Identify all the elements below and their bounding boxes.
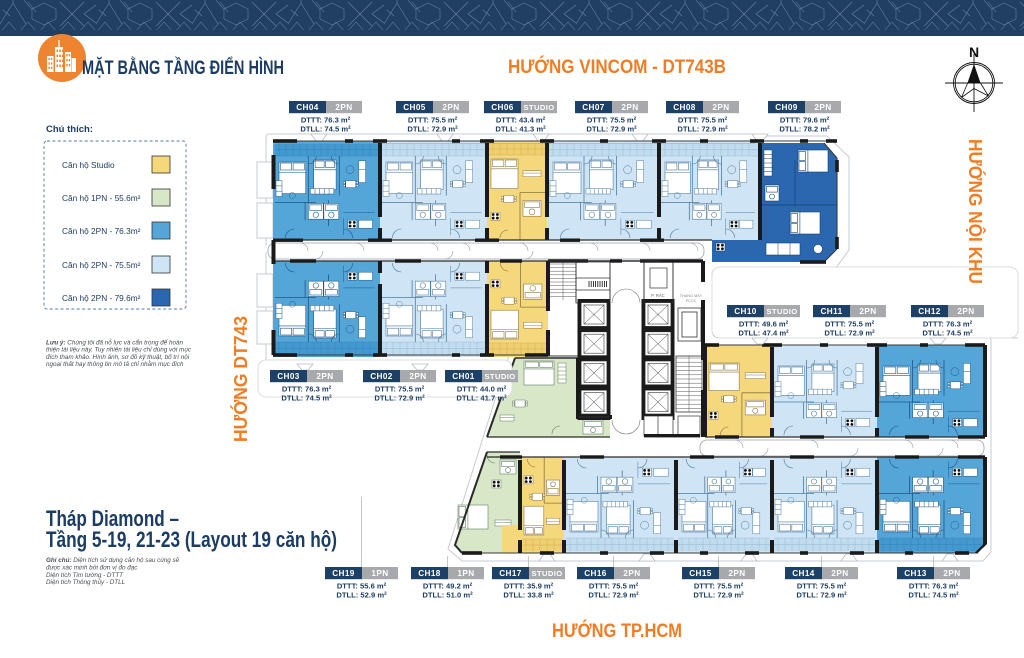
svg-text:DTLL: 72.9 m²: DTLL: 72.9 m² xyxy=(407,125,458,134)
svg-text:DTLL: 41.7 m²: DTLL: 41.7 m² xyxy=(456,394,507,403)
svg-text:DTLL: 33.8 m²: DTLL: 33.8 m² xyxy=(503,591,554,600)
svg-text:STUDIO: STUDIO xyxy=(766,307,797,316)
svg-text:CH06: CH06 xyxy=(491,103,514,112)
svg-text:HƯỚNG DT743: HƯỚNG DT743 xyxy=(230,316,251,442)
svg-text:DTTT: 75.5 m²: DTTT: 75.5 m² xyxy=(825,320,875,329)
svg-text:DTTT: 75.5 m²: DTTT: 75.5 m² xyxy=(375,385,425,394)
svg-text:2PN: 2PN xyxy=(409,372,426,381)
svg-text:DTLL: 47.4 m²: DTLL: 47.4 m² xyxy=(738,329,789,338)
svg-text:HƯỚNG TP.HCM: HƯỚNG TP.HCM xyxy=(552,618,682,642)
svg-text:DTTT: 49.2 m²: DTTT: 49.2 m² xyxy=(423,582,473,591)
svg-text:DTTT: 75.5 m²: DTTT: 75.5 m² xyxy=(589,582,639,591)
svg-text:DTTT: 75.5 m²: DTTT: 75.5 m² xyxy=(587,116,637,125)
svg-text:MẶT BẰNG TẦNG ĐIỂN HÌNH: MẶT BẰNG TẦNG ĐIỂN HÌNH xyxy=(82,55,284,79)
svg-text:PCCC: PCCC xyxy=(686,299,697,303)
svg-text:DTTT: 76.3 m²: DTTT: 76.3 m² xyxy=(282,385,332,394)
svg-text:HƯỚNG VINCOM - DT743B: HƯỚNG VINCOM - DT743B xyxy=(508,54,726,78)
svg-text:CH19: CH19 xyxy=(332,569,355,578)
svg-text:2PN: 2PN xyxy=(943,569,960,578)
svg-text:DTLL: 52.9 m²: DTLL: 52.9 m² xyxy=(336,591,387,600)
svg-text:STUDIO: STUDIO xyxy=(523,103,554,112)
svg-text:DTTT: 43.4 m²: DTTT: 43.4 m² xyxy=(496,116,546,125)
svg-text:THANG MÁY: THANG MÁY xyxy=(680,294,703,298)
svg-text:được xác minh bởi đơn vị đo đạ: được xác minh bởi đơn vị đo đạc xyxy=(46,563,138,571)
svg-text:DTTT: 76.3 m²: DTTT: 76.3 m² xyxy=(923,320,973,329)
svg-text:CH09: CH09 xyxy=(775,103,798,112)
svg-text:1PN: 1PN xyxy=(371,569,388,578)
svg-text:DTLL: 74.5 m²: DTLL: 74.5 m² xyxy=(281,394,332,403)
svg-text:CH14: CH14 xyxy=(792,569,815,578)
svg-text:CH03: CH03 xyxy=(277,372,300,381)
svg-text:CH17: CH17 xyxy=(499,569,522,578)
svg-text:Lưu ý: Chúng tôi đã nỗ lực và: Lưu ý: Chúng tôi đã nỗ lực và cẩn trọng … xyxy=(46,338,183,347)
svg-text:2PN: 2PN xyxy=(814,103,831,112)
svg-text:P. RÁC: P. RÁC xyxy=(651,293,664,298)
svg-text:DTTT: 75.5 m²: DTTT: 75.5 m² xyxy=(694,582,744,591)
svg-text:đích tham khảo. Hình ảnh, sơ đ: đích tham khảo. Hình ảnh, sơ đồ kỹ thuật… xyxy=(46,352,190,361)
svg-text:2PN: 2PN xyxy=(831,569,848,578)
svg-text:DTLL: 72.9 m²: DTLL: 72.9 m² xyxy=(588,591,639,600)
svg-text:2PN: 2PN xyxy=(335,103,352,112)
svg-text:DTTT: 75.5 m²: DTTT: 75.5 m² xyxy=(678,116,728,125)
svg-text:DTLL: 72.9 m²: DTLL: 72.9 m² xyxy=(586,125,637,134)
svg-text:Căn hộ 2PN - 75.5m²: Căn hộ 2PN - 75.5m² xyxy=(62,260,141,270)
svg-text:Căn hộ 2PN - 79.6m²: Căn hộ 2PN - 79.6m² xyxy=(62,293,141,303)
svg-text:DTTT: 55.6 m²: DTTT: 55.6 m² xyxy=(337,582,387,591)
svg-text:ngoại thất hay thông tin mô tả: ngoại thất hay thông tin mô tả chỉ nhằm … xyxy=(46,359,184,368)
svg-text:DTTT: 79.6 m²: DTTT: 79.6 m² xyxy=(780,116,830,125)
svg-text:2PN: 2PN xyxy=(859,307,876,316)
svg-text:DTLL: 72.9 m²: DTLL: 72.9 m² xyxy=(824,329,875,338)
svg-text:DTLL: 72.9 m²: DTLL: 72.9 m² xyxy=(796,591,847,600)
svg-text:2PN: 2PN xyxy=(623,569,640,578)
svg-text:DTLL: 41.3 m²: DTLL: 41.3 m² xyxy=(495,125,546,134)
svg-text:Căn hộ 1PN - 55.6m²: Căn hộ 1PN - 55.6m² xyxy=(62,193,141,203)
svg-text:DTTT: 76.3 m²: DTTT: 76.3 m² xyxy=(301,116,351,125)
svg-text:DTTT: 35.9 m²: DTTT: 35.9 m² xyxy=(504,582,554,591)
svg-text:CH02: CH02 xyxy=(370,372,393,381)
svg-text:DTTT: 44.0 m²: DTTT: 44.0 m² xyxy=(457,385,507,394)
svg-text:CH07: CH07 xyxy=(582,103,605,112)
svg-text:CH10: CH10 xyxy=(734,307,757,316)
svg-text:CH05: CH05 xyxy=(403,103,426,112)
svg-text:Ghi chú: Diện tích sử dụng căn: Ghi chú: Diện tích sử dụng căn hộ sau cù… xyxy=(46,556,180,564)
svg-text:DTLL: 72.9 m²: DTLL: 72.9 m² xyxy=(374,394,425,403)
svg-text:thiện tài liệu này. Tuy nhiên: thiện tài liệu này. Tuy nhiên tài liệu c… xyxy=(46,346,192,354)
svg-text:DTTT: 49.6 m²: DTTT: 49.6 m² xyxy=(739,320,789,329)
svg-text:Chú thích:: Chú thích: xyxy=(46,124,93,135)
svg-text:CH18: CH18 xyxy=(418,569,441,578)
svg-text:DTLL: 72.9 m²: DTLL: 72.9 m² xyxy=(677,125,728,134)
svg-text:DTTT: 75.5 m²: DTTT: 75.5 m² xyxy=(797,582,847,591)
svg-text:Diện tích Tim tường - DTTT: Diện tích Tim tường - DTTT xyxy=(46,572,124,579)
svg-text:DTTT: 76.3 m²: DTTT: 76.3 m² xyxy=(909,582,959,591)
svg-text:DTLL: 74.5 m²: DTLL: 74.5 m² xyxy=(300,125,351,134)
svg-text:DTTT: 75.5 m²: DTTT: 75.5 m² xyxy=(408,116,458,125)
svg-text:CH16: CH16 xyxy=(584,569,607,578)
svg-text:HƯỚNG NỘI KHU: HƯỚNG NỘI KHU xyxy=(965,139,986,284)
svg-text:2PN: 2PN xyxy=(316,372,333,381)
svg-text:2PN: 2PN xyxy=(728,569,745,578)
svg-text:DTLL: 72.9 m²: DTLL: 72.9 m² xyxy=(693,591,744,600)
svg-text:2PN: 2PN xyxy=(621,103,638,112)
svg-text:CH04: CH04 xyxy=(296,103,319,112)
svg-text:CH08: CH08 xyxy=(673,103,696,112)
svg-text:2PN: 2PN xyxy=(442,103,459,112)
svg-text:DTLL: 74.5 m²: DTLL: 74.5 m² xyxy=(922,329,973,338)
svg-text:STUDIO: STUDIO xyxy=(484,372,515,381)
svg-text:1PN: 1PN xyxy=(457,569,474,578)
svg-text:Diện tích Thông thủy - DTLL: Diện tích Thông thủy - DTLL xyxy=(46,578,126,586)
svg-text:2PN: 2PN xyxy=(712,103,729,112)
svg-text:CH12: CH12 xyxy=(918,307,941,316)
svg-text:DTLL: 78.2 m²: DTLL: 78.2 m² xyxy=(779,125,830,134)
svg-text:N: N xyxy=(969,44,979,60)
svg-text:CH11: CH11 xyxy=(820,307,842,316)
svg-text:2PN: 2PN xyxy=(957,307,974,316)
svg-text:STUDIO: STUDIO xyxy=(531,569,562,578)
svg-text:Căn hộ 2PN - 76.3m²: Căn hộ 2PN - 76.3m² xyxy=(62,226,141,236)
svg-text:CH13: CH13 xyxy=(904,569,927,578)
svg-text:DTLL: 74.5 m²: DTLL: 74.5 m² xyxy=(908,591,959,600)
svg-text:CH01: CH01 xyxy=(452,372,475,381)
svg-text:Căn hộ Studio: Căn hộ Studio xyxy=(62,160,115,170)
svg-text:Tầng 5-19, 21-23 (Layout 19 că: Tầng 5-19, 21-23 (Layout 19 căn hộ) xyxy=(46,527,337,552)
svg-text:CH15: CH15 xyxy=(689,569,712,578)
svg-text:DTLL: 51.0 m²: DTLL: 51.0 m² xyxy=(422,591,473,600)
